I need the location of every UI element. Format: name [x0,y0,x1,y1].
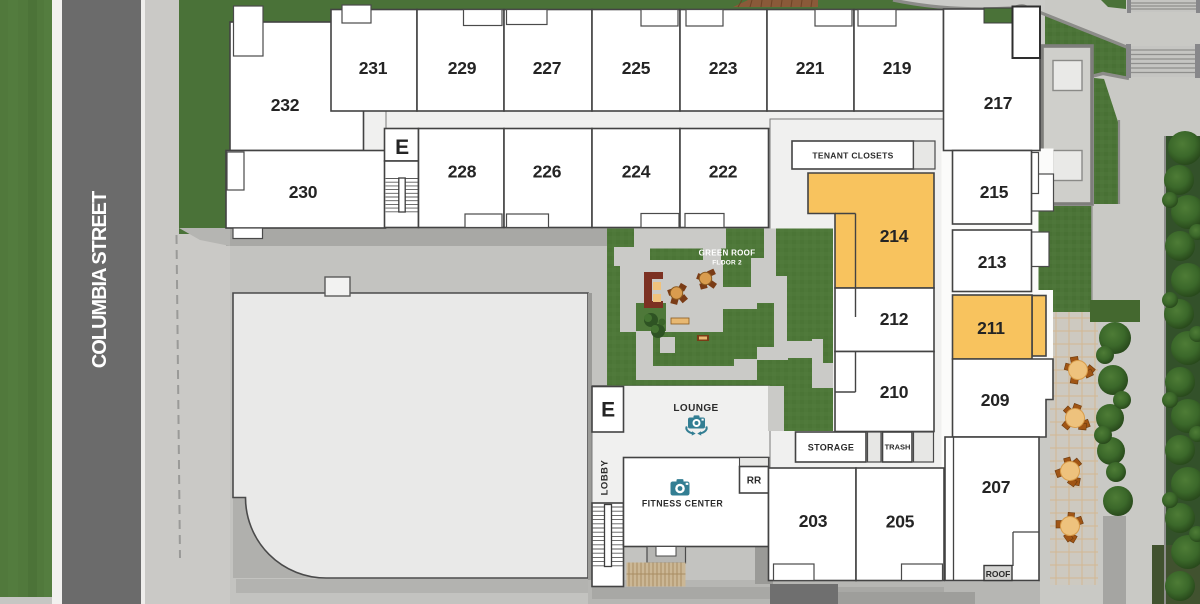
svg-text:228: 228 [448,162,477,182]
svg-text:TRASH: TRASH [885,443,911,452]
svg-text:FLOOR 2: FLOOR 2 [712,260,742,267]
svg-text:205: 205 [886,512,915,532]
svg-text:213: 213 [978,252,1007,272]
svg-text:214: 214 [880,226,909,246]
svg-text:FITNESS CENTER: FITNESS CENTER [642,499,724,509]
svg-text:222: 222 [709,162,738,182]
svg-text:STORAGE: STORAGE [808,443,854,453]
svg-text:221: 221 [796,58,825,78]
svg-text:224: 224 [622,162,651,182]
svg-text:225: 225 [622,58,651,78]
svg-text:219: 219 [883,58,912,78]
svg-text:TENANT CLOSETS: TENANT CLOSETS [812,151,893,161]
svg-text:209: 209 [981,390,1010,410]
svg-text:COLUMBIA STREET: COLUMBIA STREET [89,191,111,368]
svg-text:232: 232 [271,95,300,115]
svg-text:LOUNGE: LOUNGE [673,403,718,414]
svg-text:223: 223 [709,58,738,78]
svg-text:207: 207 [982,477,1011,497]
svg-text:229: 229 [448,58,477,78]
svg-text:231: 231 [359,58,388,78]
svg-text:212: 212 [880,309,909,329]
svg-text:215: 215 [980,182,1009,202]
svg-text:217: 217 [984,93,1013,113]
svg-text:E: E [395,136,409,159]
svg-text:GREEN ROOF: GREEN ROOF [699,249,756,258]
svg-text:E: E [601,399,615,422]
svg-text:210: 210 [880,382,909,402]
svg-text:ROOF: ROOF [986,569,1011,579]
svg-text:LOBBY: LOBBY [600,459,611,495]
svg-text:RR: RR [747,476,762,487]
svg-text:230: 230 [289,182,318,202]
svg-text:211: 211 [977,318,1005,338]
svg-text:226: 226 [533,162,562,182]
svg-text:227: 227 [533,58,562,78]
svg-text:203: 203 [799,511,828,531]
